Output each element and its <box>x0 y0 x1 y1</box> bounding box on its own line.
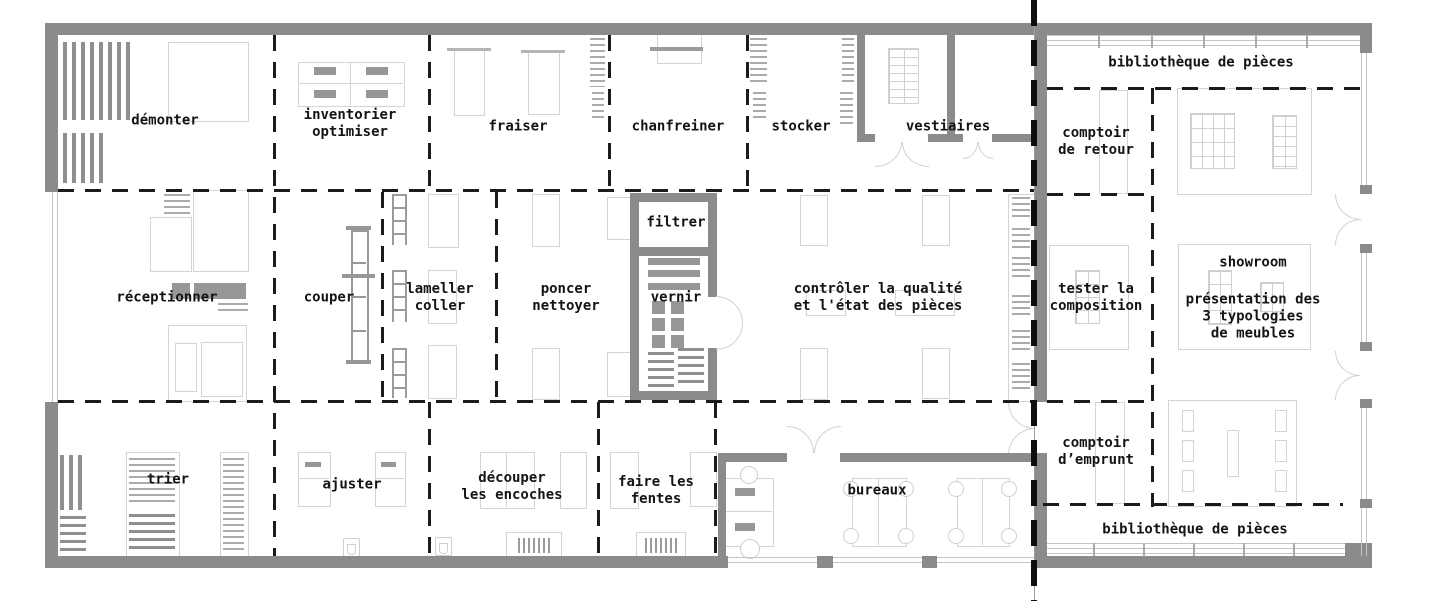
room-label-ajuster: ajuster <box>322 477 381 494</box>
milling-machine <box>454 50 485 116</box>
paint-can <box>671 318 684 331</box>
door-leaf <box>875 142 902 167</box>
door-leaf <box>716 323 743 350</box>
sorting-rack <box>60 455 84 510</box>
window-pier <box>922 556 937 568</box>
drying-rack <box>648 352 674 390</box>
door-leaf <box>1335 219 1361 245</box>
shelf-strip <box>840 92 853 124</box>
room-label-vestiaires: vestiaires <box>906 119 990 136</box>
room-label-receptionner: réceptionner <box>116 290 217 307</box>
door-leaf <box>963 142 978 159</box>
worktable <box>532 348 560 400</box>
room-label-trier: trier <box>147 472 189 489</box>
shelf-strip <box>592 92 604 120</box>
room-label-fraiser: fraiser <box>488 119 547 136</box>
partition-line <box>428 402 431 556</box>
wall-bureaux-top <box>840 453 1035 462</box>
room-label-showroom-description: présentation des 3 typologies de meubles <box>1186 292 1321 343</box>
wall-vestiaires-left <box>857 35 865 142</box>
room-label-filtrer: filtrer <box>646 215 705 232</box>
room-label-inventorier-optimiser: inventorier optimiser <box>304 107 397 141</box>
partition-line <box>1043 503 1343 506</box>
window-mullion <box>1143 543 1145 556</box>
reception-table <box>193 190 249 272</box>
shelf-strip <box>842 38 854 83</box>
window-pier <box>817 556 833 568</box>
door-pier <box>1360 399 1372 408</box>
office-chair <box>740 539 760 559</box>
door-pier <box>1360 185 1372 194</box>
workbench-tool <box>381 462 396 467</box>
floor-drain <box>343 538 360 557</box>
door-leaf <box>1335 194 1361 220</box>
wall-top <box>45 23 1372 35</box>
plank-stack <box>63 42 133 120</box>
pallet-stack <box>164 194 190 216</box>
window-right <box>1361 53 1371 185</box>
worktable <box>168 42 249 122</box>
workbench-tool <box>305 462 321 467</box>
parts-shelf <box>1190 113 1235 169</box>
wall-left-upper <box>45 23 58 192</box>
office-chair <box>1001 528 1017 544</box>
room-label-comptoir-emprunt: comptoir d’emprunt <box>1058 435 1134 469</box>
window-bureaux-south <box>728 557 1035 567</box>
office-chair <box>740 466 758 484</box>
glue-rack <box>392 348 407 398</box>
room-label-chanfreiner: chanfreiner <box>632 119 725 136</box>
section-cut-line <box>1031 0 1037 601</box>
desk-screen <box>314 90 336 98</box>
milling-machine-rail <box>521 50 565 53</box>
shelf-strip <box>753 92 766 120</box>
worktable <box>532 194 560 247</box>
parts-shelf <box>1272 115 1297 169</box>
room-label-couper: couper <box>304 290 355 307</box>
room-label-controler: contrôler la qualité et l'état des pièce… <box>794 281 963 315</box>
door-leaf <box>1335 375 1360 400</box>
shelf-strip <box>1012 197 1030 219</box>
partition-line <box>1151 88 1154 507</box>
bench <box>1182 440 1194 462</box>
sorting-rack <box>60 516 86 556</box>
milling-machine <box>528 52 560 115</box>
milling-machine-rail <box>447 48 491 51</box>
varnish-shelf-bar <box>648 258 700 265</box>
partition-line <box>1047 193 1152 196</box>
door-pier <box>1360 499 1372 508</box>
window-mullion <box>1093 543 1095 556</box>
partition-line <box>58 400 1035 403</box>
room-label-decouper: découper les encoches <box>461 470 562 504</box>
bench <box>1275 470 1287 492</box>
panel-saw-cap <box>346 360 371 364</box>
chamfer-machine-bar <box>650 47 703 51</box>
window-mullion <box>1098 35 1100 48</box>
bench <box>1182 410 1194 432</box>
saw-blades <box>518 538 553 553</box>
door-leaf <box>814 426 841 453</box>
bench <box>1275 410 1287 432</box>
paint-can <box>671 335 684 348</box>
window-mullion <box>1193 543 1195 556</box>
worktable <box>428 345 457 399</box>
room-label-bureaux: bureaux <box>847 483 906 500</box>
partition-line <box>746 35 749 192</box>
office-desk-divider <box>725 511 772 512</box>
partition-line <box>1047 87 1360 90</box>
shelf-strip <box>1012 228 1030 248</box>
wall-vestiaires-bottom <box>857 134 875 142</box>
partition-line <box>58 189 1035 192</box>
panel-saw-rung <box>352 330 366 332</box>
shelf-strip <box>1012 330 1030 352</box>
wall-bottom-right <box>1035 556 1372 568</box>
locker-stairs <box>888 48 919 104</box>
door-leaf <box>902 142 929 167</box>
shelf-strip <box>1012 295 1030 317</box>
wall-bottom-left <box>45 556 728 568</box>
inspection-table <box>922 195 950 246</box>
window-mullion <box>1306 35 1308 48</box>
room-label-demonter: démonter <box>131 113 198 130</box>
saw-blades <box>645 538 677 553</box>
wall-bureaux-top <box>726 453 787 462</box>
office-chair <box>1001 481 1017 497</box>
floor-plan: démonter inventorier optimiser fraiser c… <box>0 0 1440 601</box>
shelf-strip <box>590 38 605 87</box>
room-label-bibliotheque-bas: bibliothèque de pièces <box>1102 522 1287 539</box>
bench <box>1182 470 1194 492</box>
bench-long <box>1227 430 1239 477</box>
inspection-table <box>800 195 828 246</box>
plank-stack <box>63 133 103 183</box>
room-label-poncer-nettoyer: poncer nettoyer <box>532 281 599 315</box>
panel-saw-handle <box>342 274 375 278</box>
office-chair <box>948 528 964 544</box>
room-label-showroom: showroom <box>1219 255 1286 272</box>
window-mullion <box>1203 35 1205 48</box>
partition-line <box>428 35 431 192</box>
reception-table <box>150 217 192 272</box>
window-mullion <box>1255 35 1257 48</box>
room-label-bibliotheque-haut: bibliothèque de pièces <box>1108 55 1293 72</box>
worktable <box>428 194 459 248</box>
desk-screen <box>366 90 388 98</box>
inspection-table <box>800 348 828 400</box>
plank-pile <box>218 303 248 314</box>
glue-rack <box>392 270 407 322</box>
slotting-table <box>690 452 717 507</box>
partition-line <box>381 192 384 402</box>
window-mullion <box>1151 35 1153 48</box>
partition-line <box>1047 400 1151 403</box>
door-pier <box>1360 342 1372 351</box>
window-right <box>1361 253 1371 342</box>
office-screen <box>735 523 755 531</box>
notching-table <box>560 452 587 509</box>
paint-can <box>652 335 665 348</box>
shelf-strip <box>1012 257 1030 279</box>
window-right <box>1361 408 1371 499</box>
reception-bin <box>175 343 197 392</box>
partition-line <box>597 402 600 556</box>
reception-bin <box>201 342 243 397</box>
inspection-table <box>922 348 950 399</box>
glue-rack <box>392 194 407 245</box>
window-mullion <box>1293 543 1295 556</box>
door-pier <box>1360 244 1372 253</box>
office-chair <box>948 481 964 497</box>
door-leaf <box>1335 351 1360 376</box>
paint-can <box>652 318 665 331</box>
partition-line <box>495 192 498 402</box>
meeting-table-leg <box>982 478 983 545</box>
door-leaf <box>978 142 993 159</box>
office-chair <box>898 528 914 544</box>
door-leaf <box>716 296 743 323</box>
shelf-strip <box>1012 363 1030 393</box>
room-label-tester: tester la composition <box>1050 281 1143 315</box>
desk-divider <box>298 83 403 84</box>
window-mullion <box>1243 543 1245 556</box>
bench <box>1275 440 1287 462</box>
door-leaf <box>787 426 814 453</box>
shelf-strip <box>750 38 767 83</box>
room-label-comptoir-de-retour: comptoir de retour <box>1058 125 1134 159</box>
room-label-faire-les-fentes: faire les fentes <box>618 474 694 508</box>
drying-rack <box>678 348 704 384</box>
wall-bureaux-left <box>718 453 726 563</box>
partition-line <box>608 35 611 192</box>
office-chair <box>843 528 859 544</box>
varnish-shelf-bar <box>648 270 700 277</box>
partition-line <box>273 35 276 556</box>
floor-drain <box>435 537 452 556</box>
wall-vestiaires-bottom <box>992 134 1035 142</box>
desk-screen <box>366 67 388 75</box>
sorting-shelf-fill <box>129 514 175 552</box>
room-label-stocker: stocker <box>771 119 830 136</box>
desk-screen <box>314 67 336 75</box>
panel-saw-rung <box>352 262 366 264</box>
office-screen <box>735 488 755 496</box>
room-label-lameller-coller: lameller coller <box>406 281 473 315</box>
window-right <box>1361 508 1371 556</box>
sorting-shelf-fill <box>223 458 244 552</box>
room-label-vernir: vernir <box>651 290 702 307</box>
partition-line <box>714 402 717 556</box>
window-left <box>52 192 62 402</box>
wall-left-lower <box>45 402 58 568</box>
wall-right-top <box>1360 23 1372 53</box>
